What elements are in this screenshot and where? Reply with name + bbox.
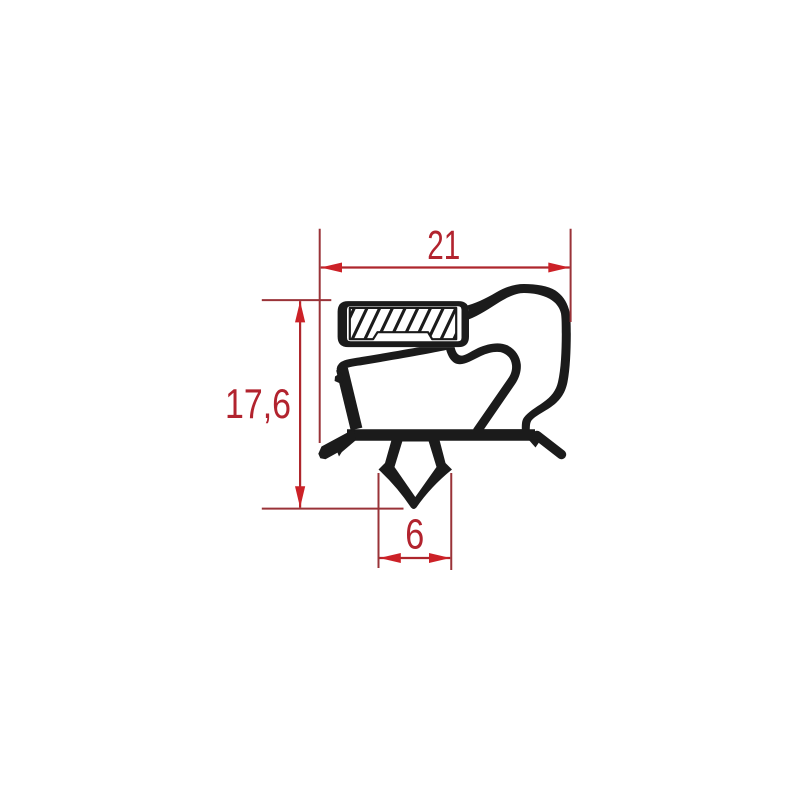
svg-text:17,6: 17,6 (225, 380, 291, 427)
svg-text:21: 21 (427, 222, 460, 268)
svg-text:6: 6 (405, 512, 424, 559)
